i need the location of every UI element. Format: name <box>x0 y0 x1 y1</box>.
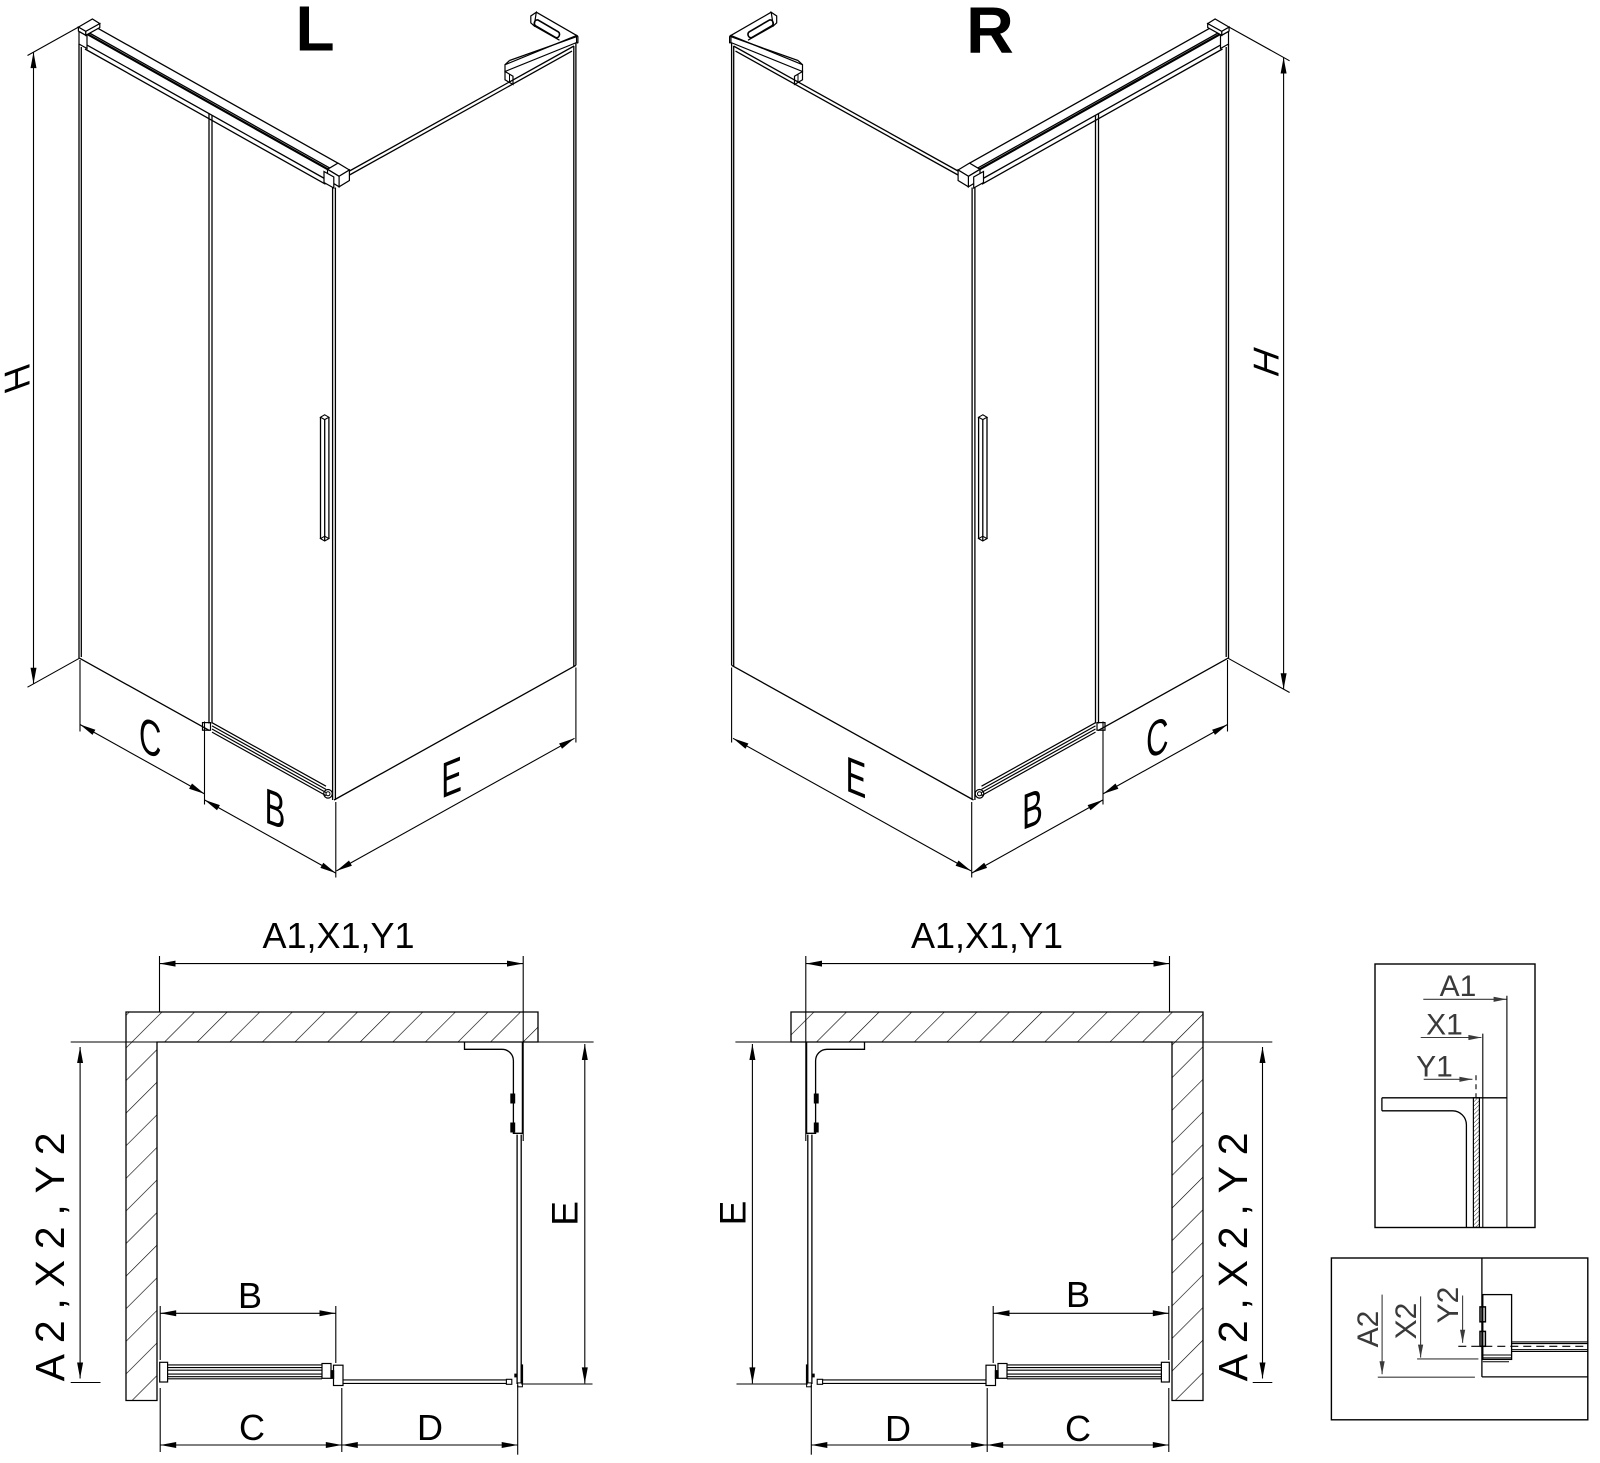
svg-text:A2,X2,Y2: A2,X2,Y2 <box>27 1122 73 1382</box>
svg-text:C: C <box>1065 1408 1091 1449</box>
svg-text:C: C <box>139 706 161 770</box>
svg-text:L: L <box>295 0 334 64</box>
svg-text:E: E <box>712 1201 753 1226</box>
svg-text:B: B <box>265 777 286 840</box>
svg-text:X1: X1 <box>1426 1009 1463 1042</box>
svg-text:R: R <box>966 0 1014 67</box>
svg-text:D: D <box>417 1407 443 1448</box>
svg-text:B: B <box>1066 1274 1090 1315</box>
svg-text:Y2: Y2 <box>1432 1287 1465 1324</box>
svg-text:D: D <box>885 1408 911 1449</box>
svg-text:A1: A1 <box>1440 970 1477 1003</box>
svg-text:A2,X2,Y2: A2,X2,Y2 <box>1210 1122 1256 1382</box>
svg-text:A1,X1,Y1: A1,X1,Y1 <box>911 915 1063 956</box>
svg-text:C: C <box>1146 706 1168 770</box>
svg-text:B: B <box>238 1275 262 1316</box>
svg-text:Y1: Y1 <box>1416 1050 1453 1083</box>
svg-text:E: E <box>846 746 867 811</box>
svg-text:A1,X1,Y1: A1,X1,Y1 <box>262 915 414 956</box>
svg-text:A2: A2 <box>1352 1311 1385 1348</box>
svg-text:C: C <box>239 1407 265 1448</box>
svg-text:B: B <box>1022 777 1043 840</box>
svg-text:E: E <box>544 1201 585 1226</box>
svg-text:X2: X2 <box>1390 1303 1423 1340</box>
svg-text:E: E <box>441 746 462 811</box>
